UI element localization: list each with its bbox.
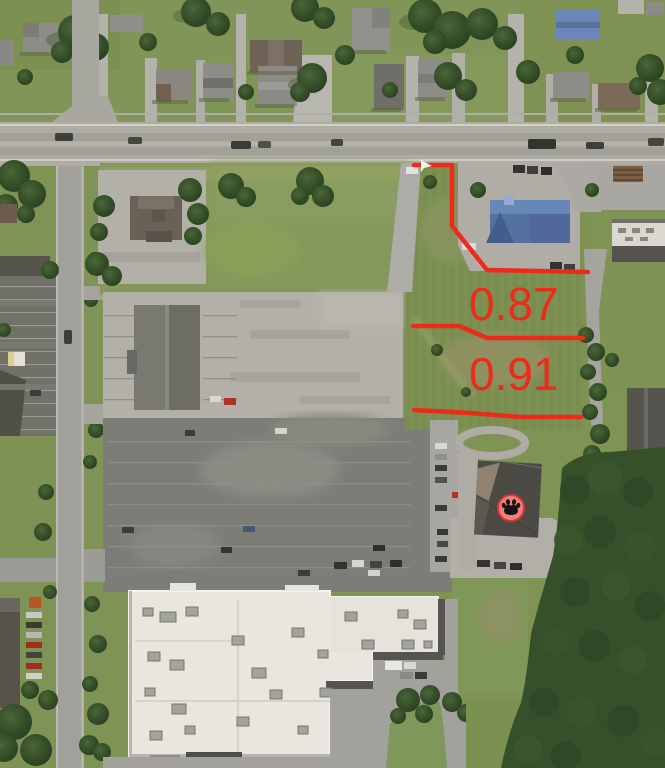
svg-text:0.91: 0.91 (469, 348, 559, 400)
svg-text:0.87: 0.87 (469, 278, 559, 330)
